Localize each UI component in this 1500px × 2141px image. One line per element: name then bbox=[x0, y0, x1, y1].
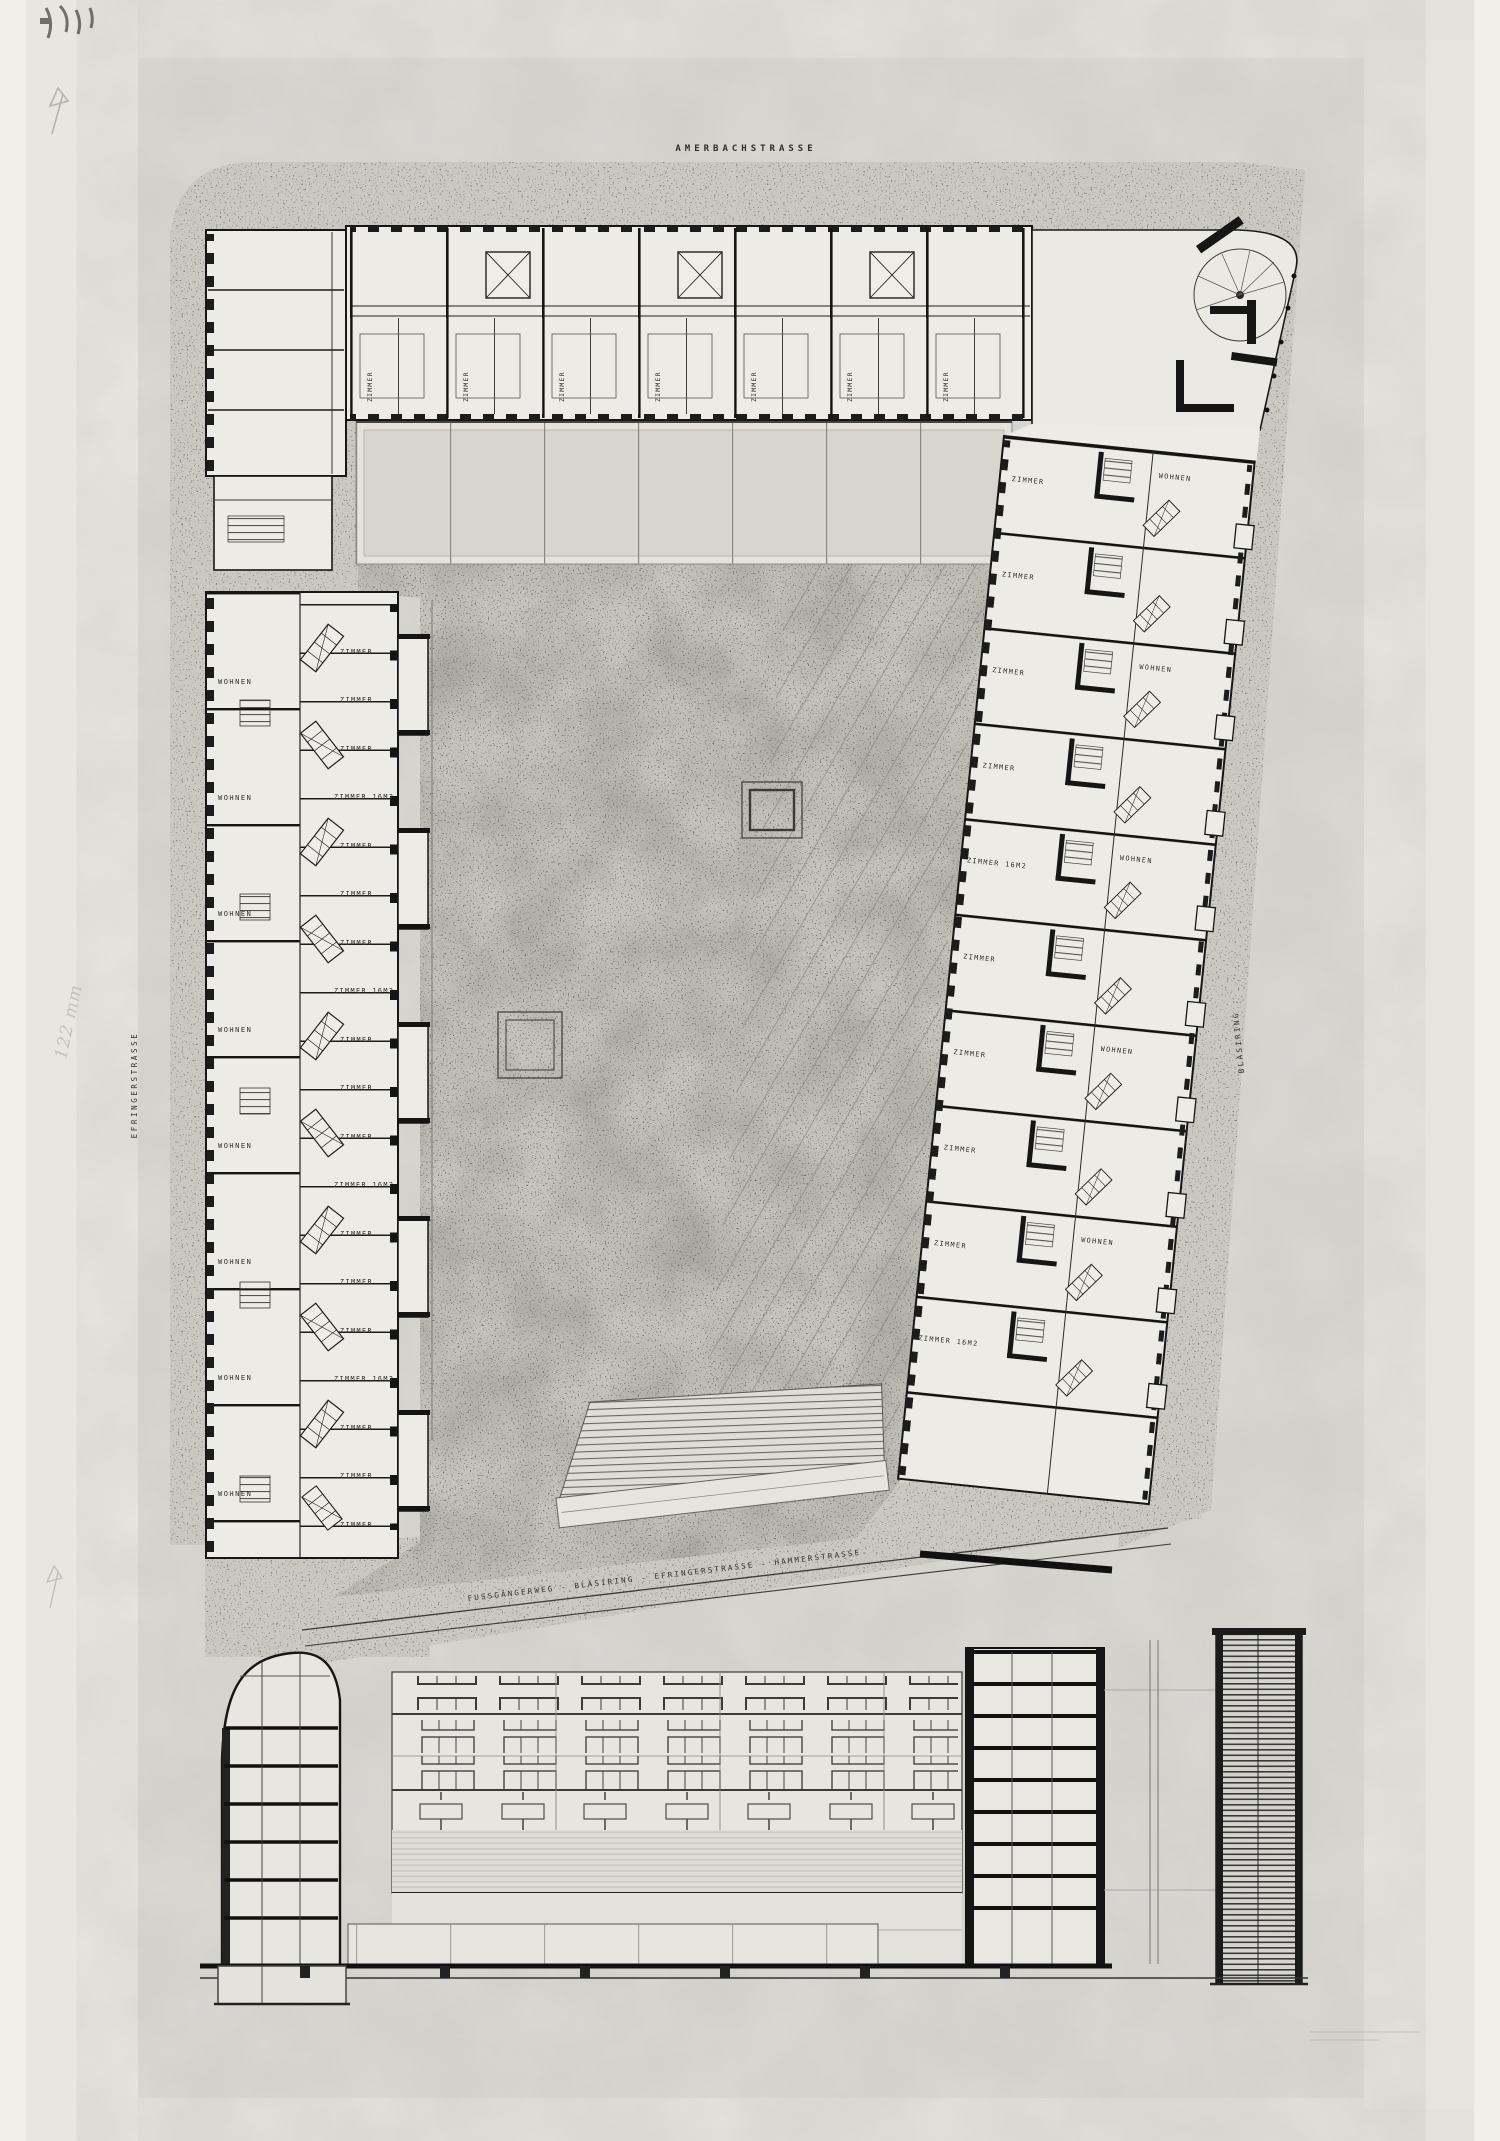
room-label: WOHNEN bbox=[218, 1026, 252, 1034]
room-label: WOHNEN bbox=[218, 678, 252, 686]
section-curved-building bbox=[222, 1653, 340, 1966]
room-label: WOHNEN bbox=[218, 910, 252, 918]
room-label: ZIMMER bbox=[340, 1230, 373, 1238]
room-label: WOHNEN bbox=[218, 1490, 252, 1498]
room-label: ZIMMER bbox=[340, 1084, 373, 1092]
room-label: ZIMMER bbox=[750, 371, 758, 402]
room-label: ZIMMER bbox=[558, 371, 566, 402]
room-label: ZIMMER bbox=[340, 696, 373, 704]
room-label: ZIMMER bbox=[654, 371, 662, 402]
room-label: ZIMMER bbox=[942, 371, 950, 402]
room-label: ZIMMER 16M2 bbox=[334, 1375, 394, 1383]
facade-elevation bbox=[392, 1672, 962, 1963]
street-label-efringerstrasse: EFRINGERSTRASSE bbox=[130, 1032, 139, 1139]
room-label: ZIMMER bbox=[340, 890, 373, 898]
room-label: WOHNEN bbox=[218, 1258, 252, 1266]
room-label: ZIMMER bbox=[846, 371, 854, 402]
garden-plots bbox=[356, 422, 1012, 564]
room-label: ZIMMER bbox=[340, 1521, 373, 1529]
room-label: ZIMMER bbox=[340, 1133, 373, 1141]
room-label: ZIMMER bbox=[340, 648, 373, 656]
architectural-drawing: ZIMMER ZIMMER ZIMMER ZIMMER ZIMMER ZIMME… bbox=[0, 0, 1500, 2141]
room-label: ZIMMER bbox=[340, 1036, 373, 1044]
room-label: WOHNEN bbox=[218, 1374, 252, 1382]
room-label: ZIMMER bbox=[366, 371, 374, 402]
photographed-plan-sheet: ZIMMER ZIMMER ZIMMER ZIMMER ZIMMER ZIMME… bbox=[0, 0, 1500, 2141]
room-label: ZIMMER bbox=[340, 1327, 373, 1335]
room-label: ZIMMER bbox=[340, 1472, 373, 1480]
room-label: ZIMMER 16M2 bbox=[334, 1181, 394, 1189]
room-label: WOHNEN bbox=[218, 1142, 252, 1150]
room-label: ZIMMER bbox=[340, 1278, 373, 1286]
corner-block-northeast bbox=[1032, 216, 1297, 446]
room-label: WOHNEN bbox=[218, 794, 252, 802]
top-wing: ZIMMER ZIMMER ZIMMER ZIMMER ZIMMER ZIMME… bbox=[346, 226, 1032, 420]
street-label-amerbachstrasse: AMERBACHSTRASSE bbox=[675, 144, 816, 154]
room-label: ZIMMER bbox=[340, 1424, 373, 1432]
room-label: ZIMMER bbox=[462, 371, 470, 402]
section-tall-building bbox=[966, 1648, 1104, 1966]
room-label: ZIMMER bbox=[340, 842, 373, 850]
room-label: ZIMMER bbox=[340, 745, 373, 753]
basement-band bbox=[348, 1924, 878, 1964]
room-label: ZIMMER 16M2 bbox=[334, 793, 394, 801]
room-label: ZIMMER bbox=[340, 939, 373, 947]
room-label: ZIMMER 16M2 bbox=[334, 987, 394, 995]
corner-block-northwest bbox=[206, 230, 346, 570]
